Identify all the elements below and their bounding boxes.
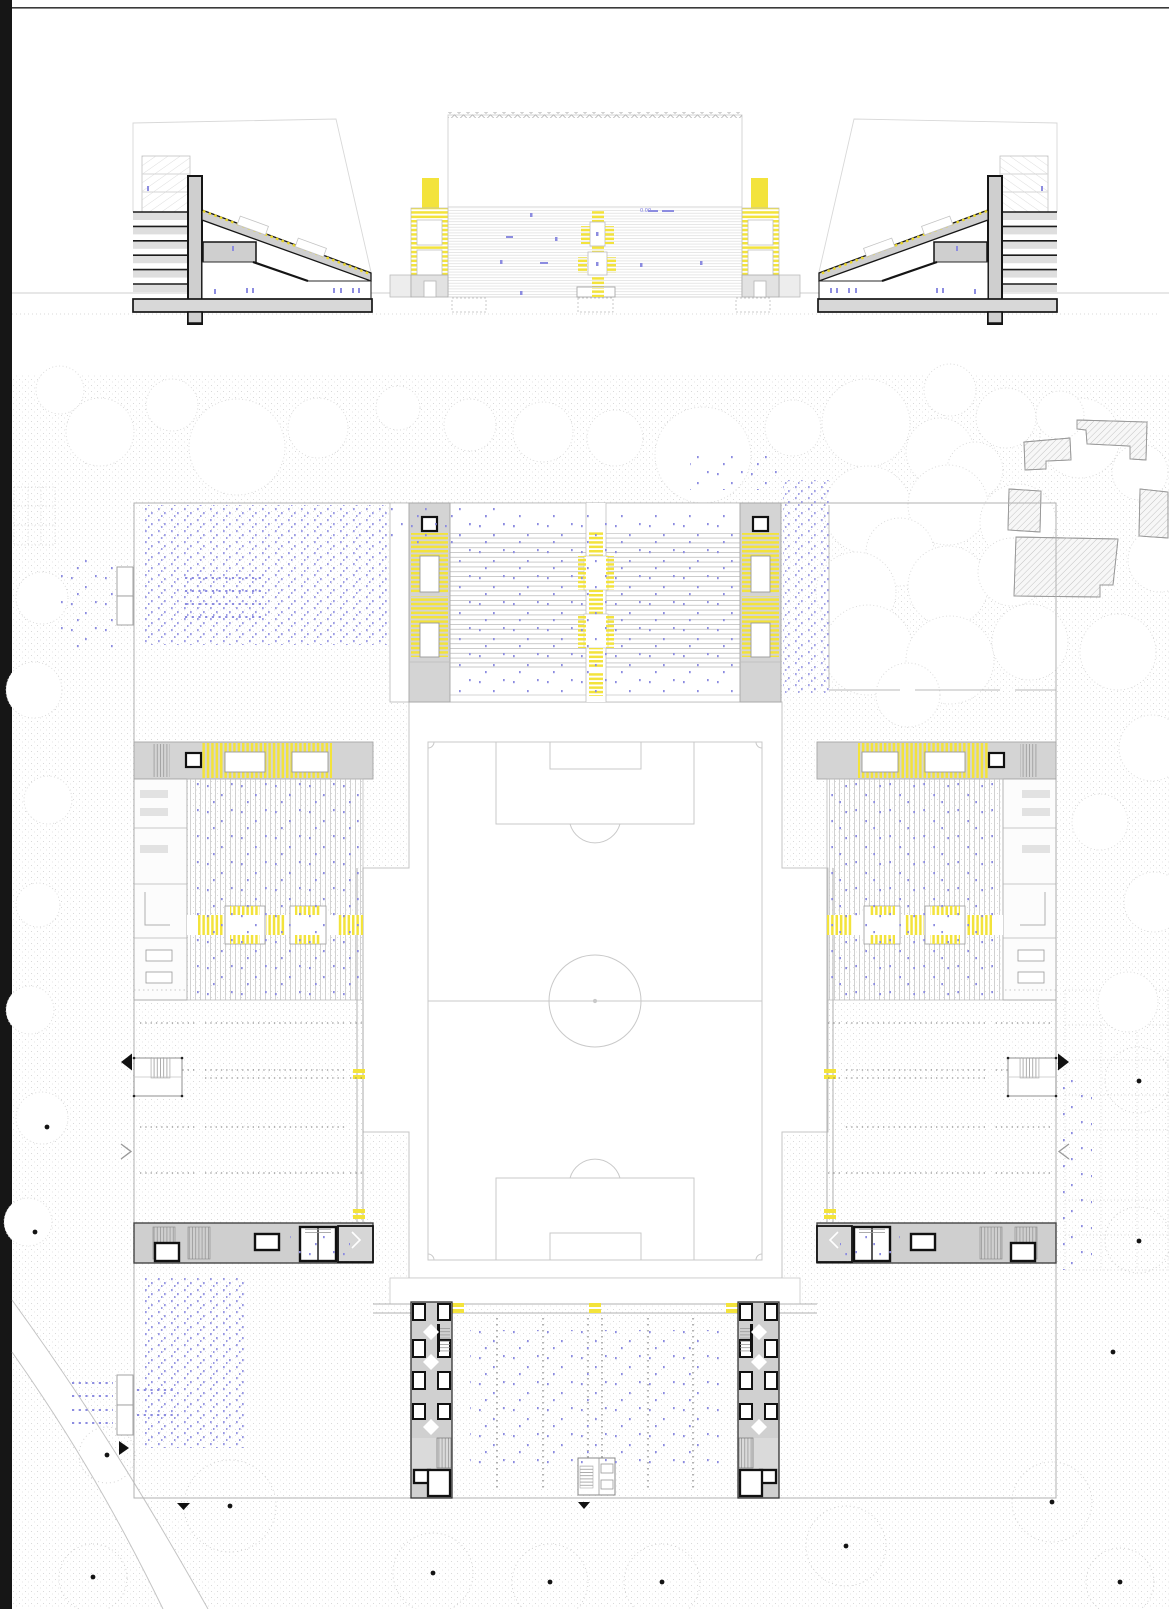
row-annotations xyxy=(190,782,360,997)
mid-tier-box xyxy=(203,242,256,264)
plaza-kiosk xyxy=(133,1057,184,1098)
drawing-canvas: 0.00 xyxy=(0,0,1169,1609)
roof-truss xyxy=(448,112,742,118)
base-slab xyxy=(133,299,372,312)
stair-flights xyxy=(133,212,188,292)
corner-building xyxy=(134,1223,373,1263)
stadium-site-plan xyxy=(4,364,1169,1609)
stair-tower-west xyxy=(390,178,448,297)
sheet-top-rule xyxy=(12,7,1169,9)
architectural-drawing-sheet: 0.00 xyxy=(0,0,1169,1609)
south-entry-tower xyxy=(411,1302,452,1498)
stand-elevation: 0.00 xyxy=(390,112,800,312)
stair-tower-east xyxy=(742,178,800,297)
service-rooms xyxy=(134,779,187,1000)
sheet-left-border xyxy=(0,0,12,1609)
